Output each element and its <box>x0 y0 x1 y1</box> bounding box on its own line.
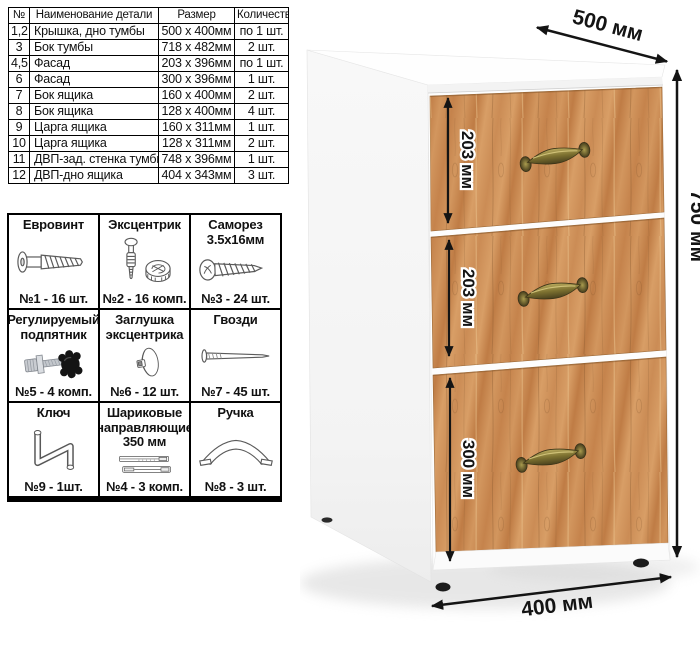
hardware-title-line: Регулируемый <box>9 313 98 328</box>
hardware-title-line: Эксцентрик <box>108 218 181 233</box>
table-cell: Бок тумбы <box>30 40 159 56</box>
table-cell: 2 шт. <box>235 88 289 104</box>
table-cell: 3 шт. <box>235 168 289 184</box>
table-row: 12ДВП-дно ящика404 х 343мм3 шт. <box>9 168 289 184</box>
parts-table-header: №Наименование деталиРазмерКоличество <box>9 8 289 24</box>
height-dimension-label: 750 мм <box>686 190 700 262</box>
parts-table-header-cell: Количество <box>235 8 289 24</box>
drawer1-dimension-label: 203 мм <box>458 131 477 189</box>
table-cell: Бок ящика <box>30 88 159 104</box>
bow-handle-icon <box>194 430 278 470</box>
table-cell: Бок ящика <box>30 104 159 120</box>
hardware-title: Регулируемыйподпятник <box>9 313 98 342</box>
hardware-icon-holder <box>101 450 188 479</box>
hardware-cell-nail: Гвозди №7 - 45 шт. <box>191 310 280 401</box>
table-cell: Фасад <box>30 56 159 72</box>
foot-front-left <box>436 583 451 592</box>
hardware-icon-holder <box>10 342 97 384</box>
table-cell: 748 х 396мм <box>159 152 235 168</box>
table-cell: Крышка, дно тумбы <box>30 24 159 40</box>
table-row: 3Бок тумбы718 х 482мм2 шт. <box>9 40 289 56</box>
table-row: 9Царга ящика160 х 311мм1 шт. <box>9 120 289 136</box>
table-cell: 1 шт. <box>235 152 289 168</box>
table-cell: 6 <box>9 72 30 88</box>
hardware-title: Евровинт <box>23 218 84 233</box>
nail-icon <box>194 338 278 374</box>
hardware-title: Ручка <box>217 406 253 421</box>
hardware-icon-holder <box>101 233 188 291</box>
self-tapping-screw-icon <box>195 247 277 291</box>
cam-lock-icon <box>105 236 185 288</box>
euro-screw-icon <box>12 241 96 283</box>
assembly-instruction-sheet: №Наименование деталиРазмерКоличество 1,2… <box>0 0 700 648</box>
hardware-title-line: направляющие <box>100 421 189 436</box>
cabinet-side-panel <box>307 50 431 582</box>
table-cell: 2 шт. <box>235 40 289 56</box>
table-cell: 7 <box>9 88 30 104</box>
hardware-title-line: эксцентрика <box>106 328 184 343</box>
table-row: 10Царга ящика128 х 311мм2 шт. <box>9 136 289 152</box>
table-cell: 1 шт. <box>235 72 289 88</box>
parts-table-header-cell: Размер <box>159 8 235 24</box>
table-cell: 718 х 482мм <box>159 40 235 56</box>
hardware-icon-holder <box>192 328 279 384</box>
hardware-cell-self-screw: Саморез3.5х16мм №3 - 24 шт. <box>191 215 280 308</box>
table-row: 1,2Крышка, дно тумбы500 х 400ммпо 1 шт. <box>9 24 289 40</box>
hardware-title-line: 3.5х16мм <box>207 233 264 248</box>
table-cell: 128 х 311мм <box>159 136 235 152</box>
table-cell: 500 х 400мм <box>159 24 235 40</box>
hardware-title-line: 350 мм <box>100 435 189 450</box>
table-cell: 12 <box>9 168 30 184</box>
hardware-cell-cam-lock: Эксцентрик №2 - 16 комп. <box>100 215 189 308</box>
hardware-title-line: подпятник <box>9 328 98 343</box>
hardware-icon-holder <box>192 421 279 479</box>
hardware-count: №5 - 4 комп. <box>15 384 92 399</box>
hardware-count: №7 - 45 шт. <box>201 384 270 399</box>
hardware-cell-bow-handle: Ручка №8 - 3 шт. <box>191 403 280 496</box>
table-cell: 160 х 400мм <box>159 88 235 104</box>
hardware-count: №2 - 16 комп. <box>103 291 187 306</box>
hardware-title: Шариковыенаправляющие350 мм <box>100 406 189 450</box>
adjustable-foot-icon <box>13 342 95 384</box>
table-cell: 10 <box>9 136 30 152</box>
hex-key-icon <box>14 424 94 476</box>
table-cell: 9 <box>9 120 30 136</box>
hardware-count: №8 - 3 шт. <box>205 479 267 494</box>
table-cell: ДВП-зад. стенка тумбы <box>30 152 159 168</box>
parts-table-header-cell: Наименование детали <box>30 8 159 24</box>
hardware-count: №4 - 3 комп. <box>106 479 183 494</box>
table-cell: Царга ящика <box>30 120 159 136</box>
table-row: 11ДВП-зад. стенка тумбы748 х 396мм1 шт. <box>9 152 289 168</box>
hardware-title: Заглушкаэксцентрика <box>106 313 184 342</box>
foot-back-left <box>322 517 333 522</box>
parts-table: №Наименование деталиРазмерКоличество 1,2… <box>8 7 289 184</box>
table-cell: Царга ящика <box>30 136 159 152</box>
hardware-icon-holder <box>10 233 97 291</box>
hardware-cell-hex-key: Ключ №9 - 1шт. <box>9 403 98 496</box>
table-row: 4,5Фасад203 х 396ммпо 1 шт. <box>9 56 289 72</box>
hardware-title-line: Гвозди <box>213 313 257 328</box>
hardware-title-line: Шариковые <box>100 406 189 421</box>
hardware-icon-holder <box>10 421 97 479</box>
hardware-cell-cam-cover: Заглушкаэксцентрика №6 - 12 шт. <box>100 310 189 401</box>
parts-table-header-cell: № <box>9 8 30 24</box>
drawer3-dimension-label: 300 мм <box>459 440 478 498</box>
table-cell: 4,5 <box>9 56 30 72</box>
cabinet-illustration: 500 мм 750 мм 400 мм 203 мм 203 мм 300 м… <box>300 0 700 648</box>
hardware-title-line: Евровинт <box>23 218 84 233</box>
table-cell: Фасад <box>30 72 159 88</box>
hardware-icon-holder <box>101 342 188 384</box>
hardware-count: №9 - 1шт. <box>24 479 82 494</box>
table-cell: 404 х 343мм <box>159 168 235 184</box>
hardware-title: Эксцентрик <box>108 218 181 233</box>
table-cell: 2 шт. <box>235 136 289 152</box>
table-cell: по 1 шт. <box>235 56 289 72</box>
table-row: 6Фасад300 х 396мм1 шт. <box>9 72 289 88</box>
hardware-title-line: Ручка <box>217 406 253 421</box>
drawer2-dimension-label: 203 мм <box>459 269 478 327</box>
hardware-count: №6 - 12 шт. <box>110 384 179 399</box>
table-cell: 3 <box>9 40 30 56</box>
hardware-title: Ключ <box>37 406 71 421</box>
hardware-title: Саморез3.5х16мм <box>207 218 264 247</box>
hardware-cell-euro-screw: Евровинт №1 - 16 шт. <box>9 215 98 308</box>
table-row: 7Бок ящика160 х 400мм2 шт. <box>9 88 289 104</box>
hardware-count: №3 - 24 шт. <box>201 291 270 306</box>
table-cell: 128 х 400мм <box>159 104 235 120</box>
foot-front-right <box>633 559 649 568</box>
table-cell: 8 <box>9 104 30 120</box>
hardware-title-line: Саморез <box>207 218 264 233</box>
table-cell: 1 шт. <box>235 120 289 136</box>
hardware-count: №1 - 16 шт. <box>19 291 88 306</box>
hardware-grid: Евровинт №1 - 16 шт.Эксцентрик <box>7 213 282 502</box>
table-cell: 160 х 311мм <box>159 120 235 136</box>
table-cell: 300 х 396мм <box>159 72 235 88</box>
hardware-icon-holder <box>192 247 279 291</box>
ball-slides-icon <box>103 450 187 479</box>
table-row: 8Бок ящика128 х 400мм4 шт. <box>9 104 289 120</box>
table-cell: 203 х 396мм <box>159 56 235 72</box>
table-cell: 4 шт. <box>235 104 289 120</box>
table-cell: 11 <box>9 152 30 168</box>
table-cell: 1,2 <box>9 24 30 40</box>
cam-cover-icon <box>106 342 184 384</box>
hardware-cell-adj-foot: Регулируемыйподпятник №5 - 4 комп. <box>9 310 98 401</box>
hardware-title-line: Ключ <box>37 406 71 421</box>
hardware-title: Гвозди <box>213 313 257 328</box>
hardware-cell-ball-slides: Шариковыенаправляющие350 мм №4 - 3 комп. <box>100 403 189 496</box>
hardware-title-line: Заглушка <box>106 313 184 328</box>
table-cell: по 1 шт. <box>235 24 289 40</box>
table-cell: ДВП-дно ящика <box>30 168 159 184</box>
